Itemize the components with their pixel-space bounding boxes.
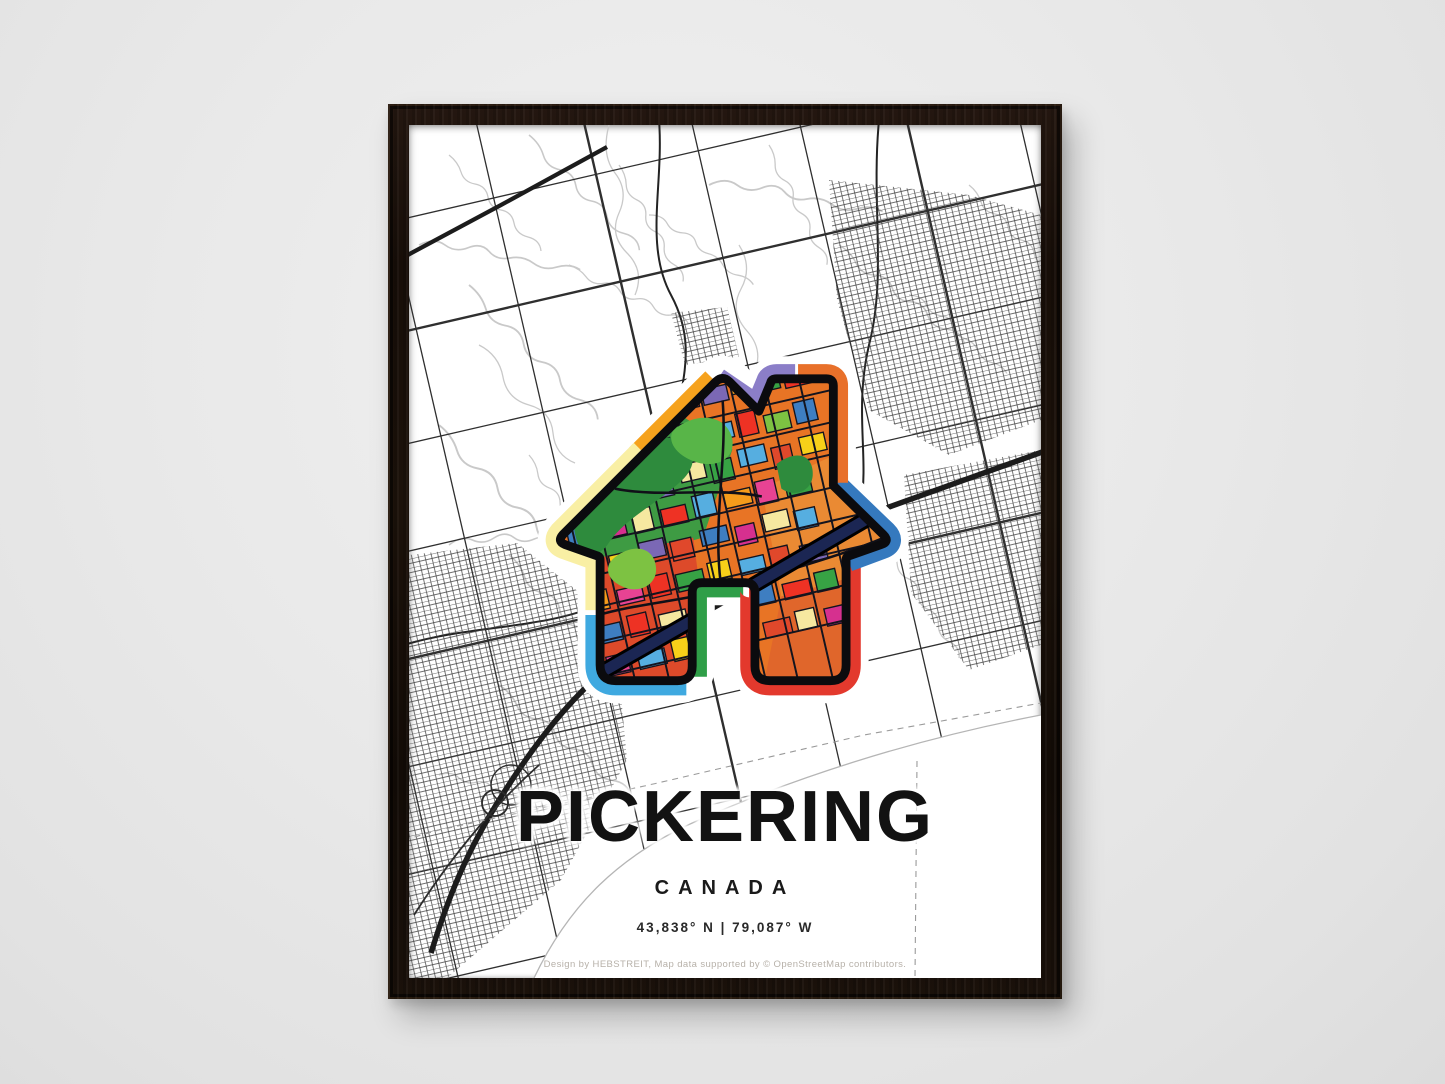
wall: PICKERING CANADA 43,838° N | 79,087° W D…: [0, 0, 1445, 1084]
poster-subtitle: CANADA: [409, 877, 1041, 900]
poster-coordinates: 43,838° N | 79,087° W: [409, 920, 1041, 935]
map-poster: PICKERING CANADA 43,838° N | 79,087° W D…: [409, 125, 1041, 978]
poster-title: PICKERING: [409, 781, 1041, 853]
picture-frame: PICKERING CANADA 43,838° N | 79,087° W D…: [388, 104, 1062, 999]
poster-credit: Design by HEBSTREIT, Map data supported …: [409, 959, 1041, 970]
